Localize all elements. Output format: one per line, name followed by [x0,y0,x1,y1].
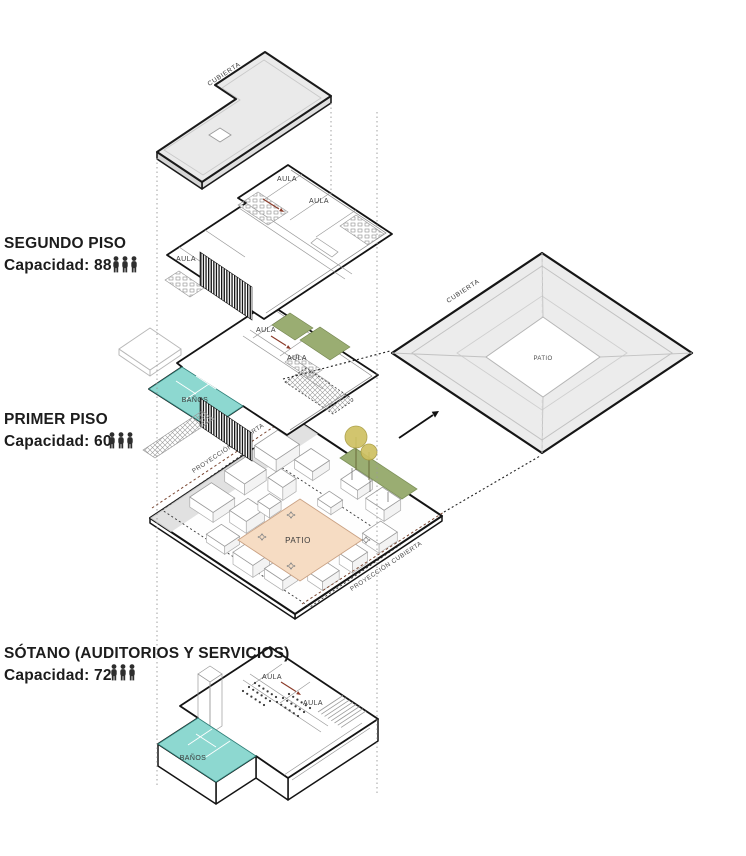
patio-roof-label: PATIO [533,356,552,362]
sotano-plate: BAÑOS AULA AULA [158,647,378,804]
person-icon [122,256,127,272]
aula-label: AULA [309,198,329,205]
segundo-piso-plate: AULA AULA AULA [165,165,392,320]
person-icon [111,664,116,680]
person-icon [120,664,125,680]
person-icon [127,432,132,448]
floor-capacity: Capacidad: 60 [4,433,112,450]
floor-name: SÓTANO (AUDITORIOS Y SERVICIOS) [4,644,290,662]
banos-label: BAÑOS [180,753,207,762]
person-icon [113,256,118,272]
person-icon [109,432,114,448]
aula-label: AULA [303,700,323,707]
primer-piso-plate: BAÑOS AULA AULA [143,303,378,461]
aula-label: AULA [256,327,276,334]
courtyard-roof: PATIO CUBIERTA [392,253,692,453]
floor-capacity: Capacidad: 72 [4,667,112,684]
person-icon [131,256,136,272]
aula-label: AULA [277,176,297,183]
tree-icon [361,444,377,460]
explode-arrow-icon [399,411,439,438]
aula-label: AULA [287,355,307,362]
floor-capacity: Capacidad: 88 [4,257,112,274]
top-roof-slab: CUBIERTA [157,52,331,189]
ground-floor-plate: PATIO PROYECCIÓN CUBIERTA PROYECCIÓN CUB… [150,410,444,619]
person-icon [118,432,123,448]
ramp-crosshatch [143,411,214,458]
floor-name: PRIMER PISO [4,411,108,428]
aula-label: AULA [176,256,196,263]
floating-slab [119,328,181,376]
person-icon [129,664,134,680]
patio-label: PATIO [285,536,311,545]
exploded-axonometric-diagram: PATIO CUBIERTA PATIO PROYECCIÓN CUBIERTA… [0,0,746,856]
aula-label: AULA [262,674,282,681]
tree-icon [345,426,367,448]
floor-name: SEGUNDO PISO [4,235,126,252]
